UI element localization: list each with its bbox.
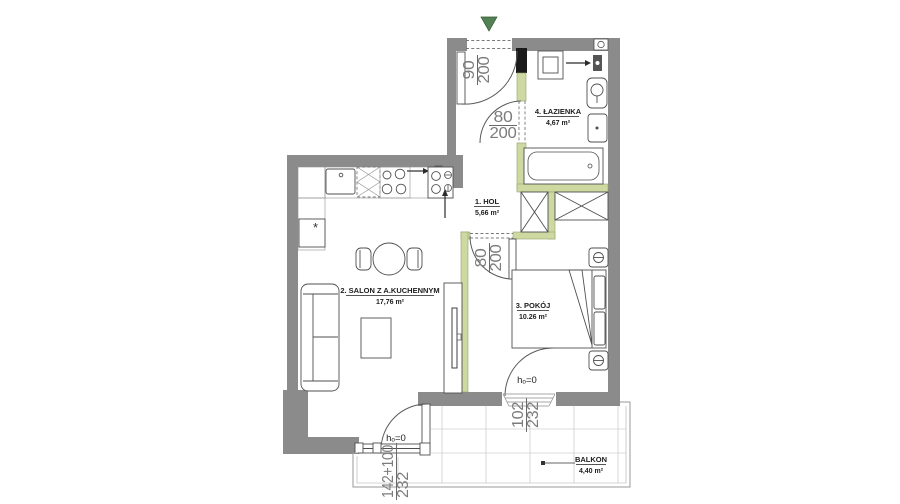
room-area-hol: 5,66 m² [475,210,500,217]
kitchen-counter-left-upper [298,167,325,198]
svg-text:80: 80 [494,109,513,126]
toilet-icon [587,78,607,108]
wall-pokoj-bottom-east [556,392,620,406]
floor-plan-page: * [0,0,900,504]
room-label-balkon: BALKON [575,455,607,464]
vent-shaft-icon [594,39,608,50]
room-area-lazienka: 4,67 m² [546,120,571,127]
tv-icon [452,308,457,368]
svg-text:200: 200 [490,125,517,142]
window-post [355,443,363,453]
wall-black-pier [516,48,527,73]
threshold-label-salon: hₒ=0 [386,433,406,444]
kitchen: * [298,166,453,250]
washbasin-icon [588,114,607,142]
room-label-salon: 2. SALON Z A.KUCHENNYM [340,286,439,295]
cooktop-icon [380,167,410,198]
washing-machine-icon [538,51,563,79]
wall-left-bottom-block [283,390,308,440]
partition-hol-bath-upper [517,73,526,101]
fridge-icon: * [299,219,325,247]
wall-kitchen-stub [453,155,463,188]
dim-entry-door: 90 200 [461,55,493,85]
chair-icon [407,248,422,270]
dim-pokoj-door: 80 200 [473,243,505,273]
water-connection-arrow-icon [566,55,602,71]
sofa-icon [301,284,339,391]
nightstand-icon [589,351,608,370]
wall-salon-bottom [283,437,359,454]
pillow-icon [594,312,605,345]
room-label-pokoj: 3. POKÓJ [516,301,551,310]
bathroom-fixtures [524,51,607,184]
tv-cabinet-icon [444,283,462,393]
dining-table-icon [356,243,422,275]
room-area-pokoj: 10.26 m² [519,314,548,321]
partition-hol-south [513,232,555,239]
chair-icon [356,248,371,270]
svg-text:200: 200 [476,56,493,83]
wall-pokoj-bottom-west [418,392,502,406]
wardrobes [521,192,608,232]
floor-plan-canvas: * [0,0,900,504]
dim-bathroom-door: 80 200 [489,109,517,142]
threshold-label-pokoj: hₒ=0 [517,375,537,386]
room-area-balkon: 4,40 m² [579,468,604,475]
svg-text:232: 232 [525,402,542,428]
fridge-symbol: * [313,220,318,235]
bathtub-icon [524,148,603,184]
salon-furniture [301,243,462,393]
wall-entry-left [447,38,456,167]
hol-wardrobe-icon [521,192,548,232]
wall-right [608,38,620,406]
pillow-icon [594,276,605,309]
pokoj-balcony-door-swing-arc [505,348,553,396]
kitchen-sink-icon [326,169,355,194]
room-area-salon: 17,76 m² [376,299,405,306]
wall-left [287,155,298,393]
pokoj-wardrobe-icon [555,192,608,220]
nightstand-icon [589,248,608,267]
coffee-table-icon [361,318,391,358]
window-post [420,443,430,455]
room-label-hol: 1. HOL [475,197,500,206]
svg-text:232: 232 [395,472,412,498]
dim-pokoj-balcony-door: 102 232 [510,398,542,432]
partition-bath-bottom [517,184,608,192]
entry-arrow-icon [481,17,497,31]
wall-kitchen-top [287,155,463,167]
balkon-leader-dot [541,461,545,465]
svg-text:200: 200 [488,244,505,271]
dishwasher-icon [357,167,380,197]
corner-sink-icon [428,167,453,198]
room-label-lazienka: 4. ŁAZIENKA [535,107,582,116]
